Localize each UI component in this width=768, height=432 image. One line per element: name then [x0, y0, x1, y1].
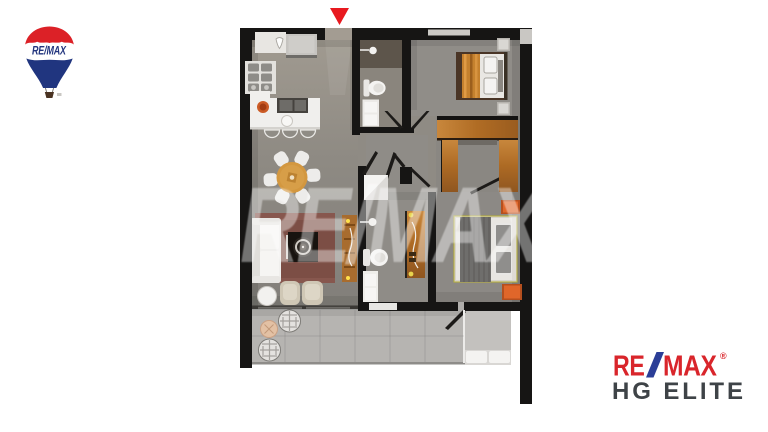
svg-text:HG ELITE: HG ELITE [612, 378, 746, 405]
svg-text:RE/MAX: RE/MAX [32, 46, 67, 58]
svg-text:®: ® [720, 351, 727, 361]
svg-text:RE/MAX: RE/MAX [240, 165, 548, 285]
